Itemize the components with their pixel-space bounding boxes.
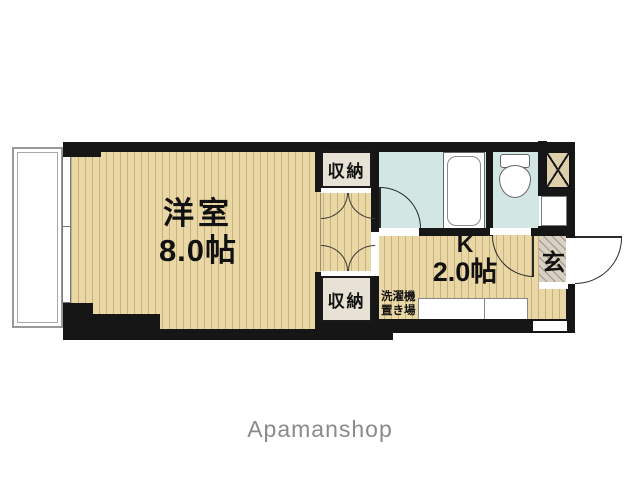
genkan-step [539,282,568,289]
wall-nook-right-top [371,150,379,232]
genkan-area: 玄 [539,236,568,283]
laundry-label-line2: 置き場 [381,304,421,318]
bath-door-leaf [379,187,381,228]
kitchen-label: K 2.0帖 [405,231,525,288]
floorplan-canvas: 玄 収納 収納 [0,0,640,480]
main-room-size: 8.0帖 [159,232,237,269]
laundry-label-line1: 洗濯機 [381,290,421,304]
brand-logo-text: Apamanshop [0,416,640,443]
main-room-label: 洋室 8.0帖 [108,196,288,269]
toilet-door-leaf [532,236,534,277]
genkan-label: 玄 [542,243,565,277]
front-door-leaf [575,236,622,238]
window-sash-tick [62,226,71,227]
laundry-label: 洗濯機 置き場 [381,290,421,318]
wall-nook-right-bottom [371,276,379,329]
bathtub-inner-line [447,156,481,226]
kitchen-name: K [457,231,474,257]
front-door-opening [566,238,575,284]
balcony-inner-line [17,152,58,323]
wall-bath-toilet [486,150,493,236]
main-room-name: 洋室 [163,196,233,232]
shoe-cabinet [541,196,567,226]
bathtub [443,152,485,230]
closet-top: 収納 [321,151,372,188]
pipe-space-box [545,151,571,189]
sliding-window [62,155,71,303]
wall-corner-top-left [63,142,101,157]
closet-bottom: 収納 [321,276,372,322]
meter-box [531,319,569,333]
closet-bottom-label: 収納 [328,287,366,312]
front-door-arc [575,238,622,284]
kitchen-counter-right [484,298,528,320]
kitchen-size: 2.0帖 [433,257,498,288]
kitchen-counter-left [418,298,485,320]
closet-top-label: 収納 [328,157,366,182]
